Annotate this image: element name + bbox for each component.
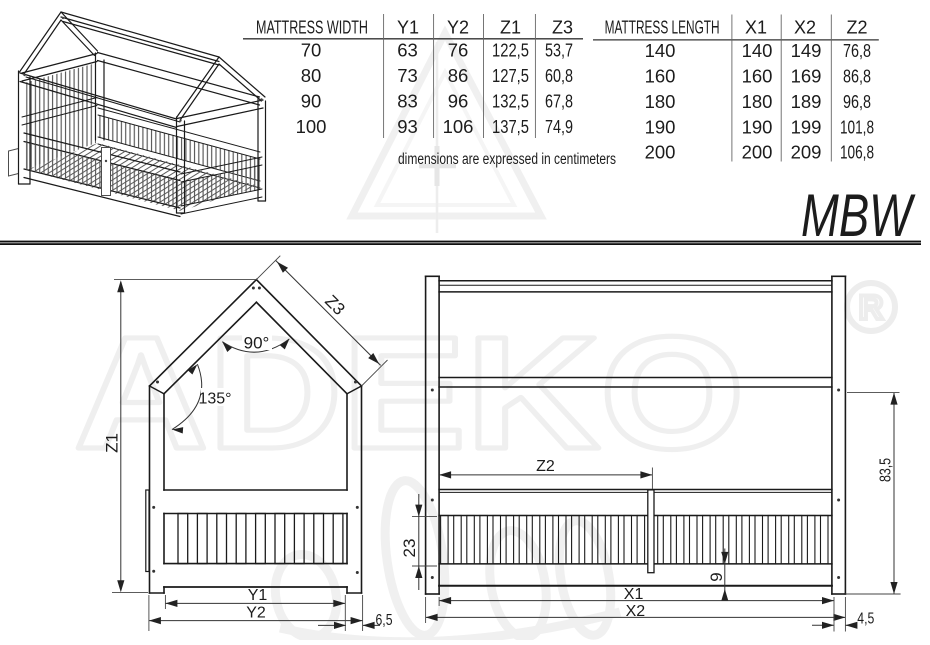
svg-text:80: 80 [301, 65, 322, 86]
svg-text:127,5: 127,5 [492, 65, 529, 86]
svg-text:Y2: Y2 [447, 18, 469, 38]
svg-text:Z2: Z2 [536, 458, 555, 475]
svg-text:83: 83 [397, 91, 418, 112]
svg-text:X1: X1 [745, 18, 767, 38]
svg-text:X2: X2 [626, 603, 646, 620]
svg-text:Z2: Z2 [846, 18, 867, 38]
svg-text:Z1: Z1 [500, 18, 521, 38]
svg-text:100: 100 [296, 116, 327, 137]
svg-text:dimensions are expressed in ce: dimensions are expressed in centimeters [398, 151, 616, 168]
svg-text:76,8: 76,8 [843, 40, 871, 61]
svg-text:MBW: MBW [801, 182, 916, 249]
svg-text:106: 106 [443, 116, 474, 137]
svg-text:Y1: Y1 [397, 18, 419, 38]
svg-text:140: 140 [645, 40, 676, 61]
svg-text:122,5: 122,5 [492, 40, 529, 61]
svg-text:Y2: Y2 [246, 605, 266, 622]
svg-text:209: 209 [791, 142, 822, 163]
svg-text:63: 63 [397, 40, 418, 61]
svg-text:189: 189 [791, 91, 822, 112]
svg-text:X2: X2 [794, 18, 816, 38]
svg-text:169: 169 [791, 66, 822, 87]
svg-text:23: 23 [400, 539, 419, 558]
svg-text:6,5: 6,5 [376, 612, 393, 629]
svg-text:70: 70 [301, 40, 322, 61]
svg-text:67,8: 67,8 [545, 91, 573, 112]
svg-text:86: 86 [448, 65, 469, 86]
svg-text:83,5: 83,5 [878, 458, 895, 482]
svg-text:200: 200 [742, 142, 773, 163]
svg-text:Z3: Z3 [552, 18, 573, 38]
svg-text:73: 73 [397, 65, 418, 86]
svg-text:4,5: 4,5 [857, 611, 874, 628]
svg-text:86,8: 86,8 [843, 66, 871, 87]
svg-text:MATTRESS LENGTH: MATTRESS LENGTH [605, 18, 720, 38]
svg-text:Y1: Y1 [248, 587, 268, 604]
svg-text:180: 180 [742, 91, 773, 112]
svg-text:200: 200 [645, 142, 676, 163]
svg-text:149: 149 [791, 40, 822, 61]
svg-text:MATTRESS WIDTH: MATTRESS WIDTH [256, 18, 368, 38]
svg-text:140: 140 [742, 40, 773, 61]
svg-text:53,7: 53,7 [545, 40, 573, 61]
svg-text:X1: X1 [624, 586, 644, 603]
svg-text:132,5: 132,5 [492, 91, 529, 112]
svg-text:135°: 135° [198, 391, 231, 408]
svg-text:R: R [859, 289, 884, 327]
svg-text:137,5: 137,5 [492, 116, 529, 137]
svg-text:106,8: 106,8 [840, 142, 874, 163]
svg-text:90°: 90° [244, 334, 270, 353]
svg-text:101,8: 101,8 [840, 117, 874, 138]
svg-text:190: 190 [645, 117, 676, 138]
svg-text:93: 93 [397, 116, 418, 137]
svg-text:96: 96 [448, 91, 469, 112]
svg-text:160: 160 [742, 66, 773, 87]
svg-text:199: 199 [791, 117, 822, 138]
svg-text:180: 180 [645, 91, 676, 112]
svg-text:160: 160 [645, 66, 676, 87]
svg-text:60,8: 60,8 [545, 65, 573, 86]
svg-text:96,8: 96,8 [843, 91, 871, 112]
svg-text:9: 9 [707, 572, 726, 581]
svg-text:ADEKO: ADEKO [74, 303, 744, 482]
svg-text:Z1: Z1 [103, 433, 122, 453]
svg-text:190: 190 [742, 117, 773, 138]
svg-text:74,9: 74,9 [545, 116, 573, 137]
svg-text:76: 76 [448, 40, 469, 61]
svg-text:90: 90 [301, 91, 322, 112]
